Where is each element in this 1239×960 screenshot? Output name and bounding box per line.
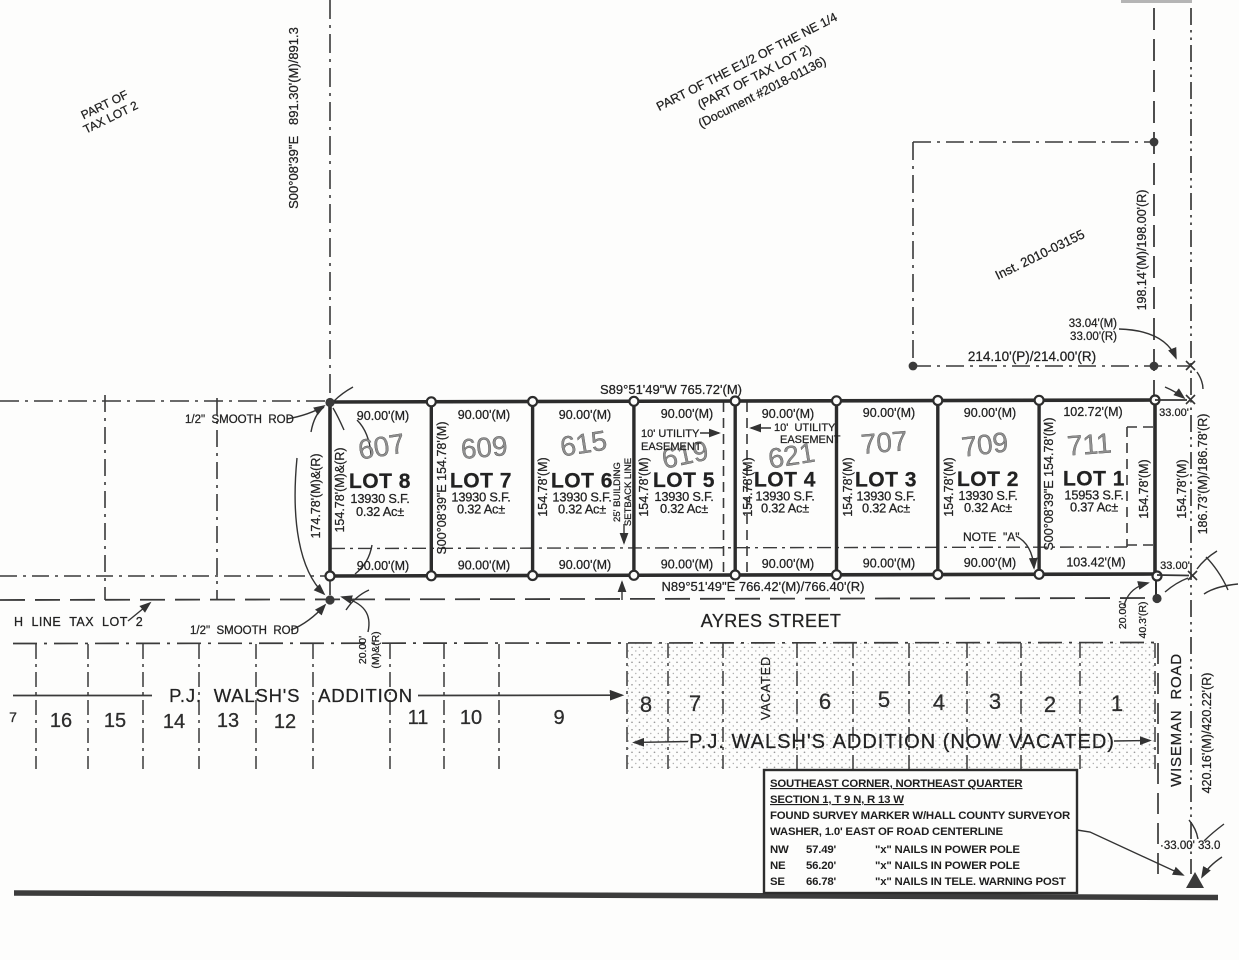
svg-text:7: 7 — [689, 691, 701, 716]
svg-text:"x" NAILS IN TELE. WARNING POS: "x" NAILS IN TELE. WARNING POST — [875, 876, 1066, 888]
svg-text:WISEMAN ROAD: WISEMAN ROAD — [1168, 653, 1185, 787]
svg-text:SECTION 1, T 9 N, R 13 W: SECTION 1, T 9 N, R 13 W — [770, 794, 904, 806]
svg-text:33.00': 33.00' — [1160, 560, 1190, 572]
svg-text:10: 10 — [460, 707, 482, 729]
svg-text:·33.00': ·33.00' — [1160, 840, 1195, 852]
svg-text:S00°08'39"E 154.78'(M): S00°08'39"E 154.78'(M) — [1042, 417, 1056, 550]
svg-text:16: 16 — [50, 710, 72, 732]
svg-text:10' UTILITY: 10' UTILITY — [641, 428, 700, 440]
svg-text:174.78'(M)&(R): 174.78'(M)&(R) — [309, 453, 323, 538]
svg-text:90.00'(M): 90.00'(M) — [762, 407, 814, 421]
svg-text:33.0: 33.0 — [1198, 840, 1220, 852]
svg-text:WASHER, 1.0' EAST OF ROAD CENT: WASHER, 1.0' EAST OF ROAD CENTERLINE — [770, 826, 1003, 838]
svg-text:33.04'(M): 33.04'(M) — [1069, 318, 1117, 330]
svg-text:S89°51'49"W 765.72'(M): S89°51'49"W 765.72'(M) — [600, 382, 742, 397]
svg-text:SETBACK LINE: SETBACK LINE — [623, 458, 634, 526]
svg-text:90.00'(M): 90.00'(M) — [458, 408, 510, 422]
svg-text:90.00'(M): 90.00'(M) — [357, 559, 409, 573]
svg-text:90.00'(M): 90.00'(M) — [661, 558, 713, 572]
svg-text:9: 9 — [553, 707, 564, 729]
svg-text:NW: NW — [770, 844, 789, 856]
svg-text:EASEMENT: EASEMENT — [641, 441, 702, 453]
svg-text:214.10'(P)/214.00'(R): 214.10'(P)/214.00'(R) — [968, 349, 1096, 364]
svg-text:154.78'(M): 154.78'(M) — [741, 457, 755, 516]
svg-text:609: 609 — [460, 430, 509, 465]
svg-text:707: 707 — [860, 425, 909, 460]
svg-text:SE: SE — [770, 876, 785, 888]
svg-text:90.00'(M): 90.00'(M) — [458, 559, 510, 573]
svg-text:198.14'(M)/198.00'(R): 198.14'(M)/198.00'(R) — [1135, 190, 1149, 311]
svg-text:"x" NAILS IN POWER POLE: "x" NAILS IN POWER POLE — [875, 844, 1020, 856]
svg-text:P.J. WALSH'S ADDITION (NOW VAC: P.J. WALSH'S ADDITION (NOW VACATED) — [689, 731, 1115, 753]
svg-text:102.72'(M): 102.72'(M) — [1063, 405, 1122, 419]
svg-text:0.32 Ac±: 0.32 Ac± — [457, 502, 505, 517]
svg-text:154.78'(M): 154.78'(M) — [1137, 459, 1151, 518]
svg-text:2: 2 — [1044, 692, 1056, 717]
svg-text:13: 13 — [217, 710, 239, 732]
svg-text:15: 15 — [104, 710, 126, 732]
svg-text:33.00': 33.00' — [1159, 407, 1189, 419]
svg-text:H LINE TAX LOT 2: H LINE TAX LOT 2 — [14, 615, 143, 629]
svg-text:90.00'(M): 90.00'(M) — [559, 558, 611, 572]
svg-text:11: 11 — [408, 707, 429, 729]
svg-text:"x" NAILS IN POWER POLE: "x" NAILS IN POWER POLE — [875, 860, 1020, 872]
svg-text:90.00'(M): 90.00'(M) — [863, 557, 915, 571]
svg-text:6: 6 — [819, 689, 831, 714]
svg-text:103.42'(M): 103.42'(M) — [1066, 556, 1125, 570]
svg-text:0.32 Ac±: 0.32 Ac± — [761, 501, 809, 516]
svg-text:NE: NE — [770, 860, 786, 872]
svg-text:154.78'(M)&(R): 154.78'(M)&(R) — [333, 447, 347, 532]
svg-text:10' UTILITY: 10' UTILITY — [774, 422, 836, 434]
svg-text:1/2" SMOOTH ROD: 1/2" SMOOTH ROD — [190, 625, 299, 637]
svg-text:90.00'(M): 90.00'(M) — [357, 409, 409, 423]
svg-text:LOT 8: LOT 8 — [349, 470, 411, 493]
svg-text:90.00'(M): 90.00'(M) — [661, 407, 713, 421]
svg-text:14: 14 — [163, 711, 185, 733]
svg-text:56.20': 56.20' — [806, 860, 837, 872]
svg-text:8: 8 — [640, 692, 652, 717]
svg-text:4: 4 — [933, 690, 945, 715]
svg-text:FOUND SURVEY MARKER W/HALL COU: FOUND SURVEY MARKER W/HALL COUNTY SURVEY… — [770, 810, 1070, 822]
svg-text:90.00'(M): 90.00'(M) — [559, 408, 611, 422]
svg-text:90.00'(M): 90.00'(M) — [964, 406, 1016, 420]
svg-text:20.00': 20.00' — [1117, 601, 1129, 629]
svg-text:3: 3 — [989, 689, 1001, 714]
svg-text:90.00'(M): 90.00'(M) — [964, 556, 1016, 570]
svg-text:12: 12 — [274, 711, 296, 733]
svg-text:154.78'(M): 154.78'(M) — [637, 457, 651, 516]
svg-text:N89°51'49"E 766.42'(M)/766.40': N89°51'49"E 766.42'(M)/766.40'(R) — [662, 579, 865, 594]
svg-text:154.78'(M): 154.78'(M) — [841, 457, 855, 516]
svg-text:NOTE "A": NOTE "A" — [963, 530, 1020, 544]
svg-text:420.16'(M)/420.22'(R): 420.16'(M)/420.22'(R) — [1200, 673, 1214, 794]
svg-text:20.00': 20.00' — [357, 636, 369, 664]
svg-text:154.78'(M): 154.78'(M) — [1175, 459, 1189, 518]
svg-text:25' BUILDING: 25' BUILDING — [612, 462, 623, 522]
svg-text:1/2" SMOOTH ROD: 1/2" SMOOTH ROD — [185, 414, 294, 426]
svg-text:5: 5 — [878, 687, 890, 712]
svg-text:57.49': 57.49' — [806, 844, 837, 856]
svg-text:7: 7 — [9, 709, 17, 725]
svg-text:0.32 Ac±: 0.32 Ac± — [964, 500, 1012, 515]
svg-text:711: 711 — [1066, 428, 1113, 462]
svg-text:VACATED: VACATED — [759, 656, 773, 720]
svg-text:154.78'(M): 154.78'(M) — [942, 457, 956, 516]
svg-text:S00°08'39"E 891.30'(M)/891.3: S00°08'39"E 891.30'(M)/891.3 — [286, 27, 301, 209]
svg-text:0.32 Ac±: 0.32 Ac± — [558, 501, 606, 516]
svg-text:0.37 Ac±: 0.37 Ac± — [1070, 500, 1118, 515]
svg-text:709: 709 — [960, 426, 1010, 462]
svg-text:(M)&(R): (M)&(R) — [370, 631, 382, 668]
svg-text:EASEMENT: EASEMENT — [780, 434, 841, 446]
svg-text:66.78': 66.78' — [806, 876, 837, 888]
svg-text:154.78'(M): 154.78'(M) — [536, 457, 550, 516]
svg-text:33.00'(R): 33.00'(R) — [1070, 331, 1117, 343]
svg-text:90.00'(M): 90.00'(M) — [762, 557, 814, 571]
svg-text:0.32 Ac±: 0.32 Ac± — [356, 504, 404, 519]
svg-text:P.J. WALSH'S ADDITION: P.J. WALSH'S ADDITION — [169, 685, 413, 706]
svg-text:1: 1 — [1111, 691, 1123, 716]
svg-text:AYRES STREET: AYRES STREET — [701, 611, 842, 631]
svg-text:0.32 Ac±: 0.32 Ac± — [660, 501, 708, 516]
svg-text:186.73'(M)/186.78'(R): 186.73'(M)/186.78'(R) — [1196, 414, 1210, 535]
svg-text:S00°08'39"E 154.78'(M): S00°08'39"E 154.78'(M) — [435, 421, 449, 554]
svg-text:0.32 Ac±: 0.32 Ac± — [862, 500, 910, 515]
svg-text:40.3'(R): 40.3'(R) — [1137, 601, 1149, 638]
svg-text:90.00'(M): 90.00'(M) — [863, 406, 915, 420]
svg-text:SOUTHEAST CORNER, NORTHEAST QU: SOUTHEAST CORNER, NORTHEAST QUARTER — [770, 778, 1022, 790]
